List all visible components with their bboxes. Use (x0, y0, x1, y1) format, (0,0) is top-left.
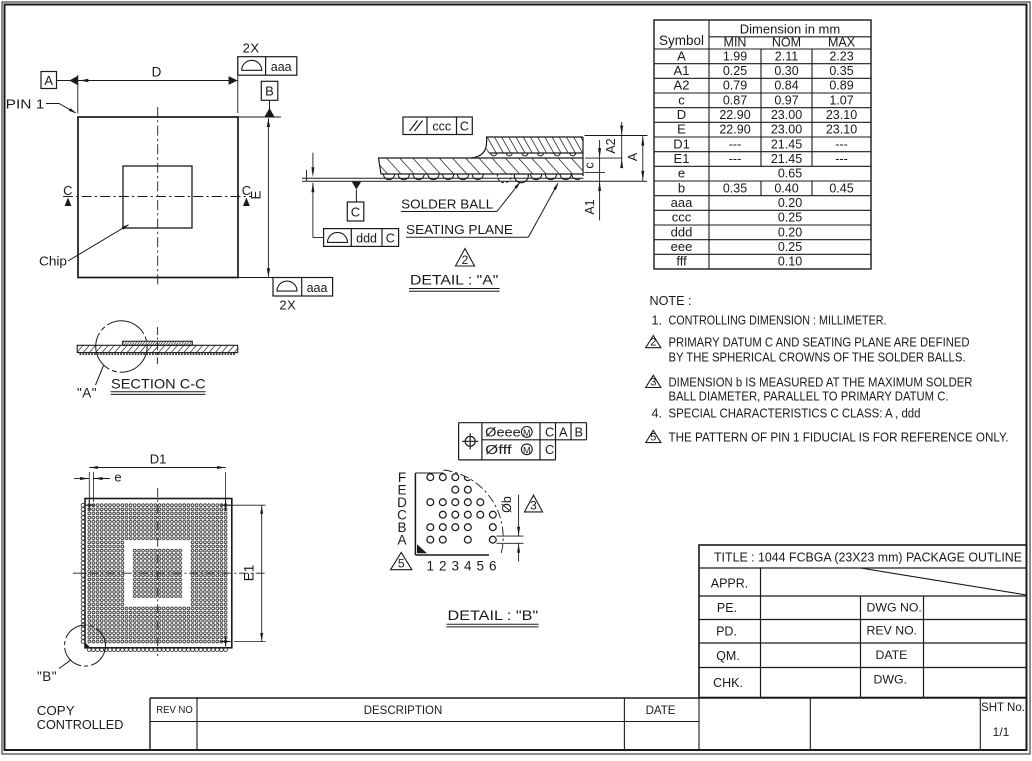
svg-text:2X: 2X (279, 298, 296, 313)
svg-text:BALL DIAMETER, PARALLEL TO PRI: BALL DIAMETER, PARALLEL TO PRIMARY DATUM… (669, 389, 949, 403)
svg-text:D1: D1 (673, 136, 690, 151)
svg-text:A: A (397, 532, 406, 547)
svg-text:2: 2 (650, 337, 656, 349)
svg-text:D1: D1 (150, 452, 167, 467)
svg-text:A1: A1 (674, 63, 690, 78)
svg-text:0.65: 0.65 (778, 167, 802, 181)
svg-text:0.84: 0.84 (774, 79, 798, 93)
svg-text:SECTION C-C: SECTION C-C (111, 376, 206, 392)
svg-text:E1: E1 (674, 151, 690, 166)
svg-text:CONTROLLED: CONTROLLED (37, 717, 124, 732)
svg-text:Dimension in mm: Dimension in mm (740, 22, 840, 37)
svg-text:22.90: 22.90 (719, 123, 750, 137)
svg-text:c: c (678, 92, 685, 107)
svg-text:B: B (575, 425, 584, 440)
svg-text:0.10: 0.10 (778, 255, 802, 269)
svg-text:b: b (678, 180, 685, 195)
svg-text:APPR.: APPR. (711, 577, 749, 591)
svg-text:c: c (583, 162, 597, 168)
svg-text:0.79: 0.79 (723, 79, 747, 93)
svg-text:---: --- (729, 152, 742, 166)
svg-text:0.25: 0.25 (723, 64, 747, 78)
svg-text:2X: 2X (243, 41, 260, 56)
svg-text:"A": "A" (77, 386, 97, 401)
svg-text:0.25: 0.25 (778, 211, 802, 225)
svg-text:5: 5 (398, 557, 405, 571)
svg-text:A: A (44, 73, 53, 88)
svg-text:0.89: 0.89 (829, 79, 853, 93)
svg-text:0.35: 0.35 (723, 181, 747, 195)
svg-text:MIN: MIN (724, 36, 747, 50)
svg-text:ccc: ccc (432, 120, 451, 134)
svg-text:0.45: 0.45 (829, 181, 853, 195)
svg-text:e: e (114, 470, 121, 485)
svg-text:0.40: 0.40 (774, 181, 798, 195)
svg-text:21.45: 21.45 (771, 152, 802, 166)
svg-text:5: 5 (477, 559, 485, 574)
svg-text:SPECIAL CHARACTERISTICS C CLAS: SPECIAL CHARACTERISTICS C CLASS: A , ddd (669, 407, 921, 421)
svg-text:---: --- (835, 137, 848, 151)
svg-text:A: A (559, 425, 568, 440)
svg-text:2.11: 2.11 (775, 49, 798, 63)
svg-text:4.: 4. (652, 407, 662, 421)
svg-text:C: C (63, 183, 72, 198)
svg-text:E: E (677, 122, 686, 137)
svg-text:C: C (460, 120, 469, 134)
svg-text:C: C (386, 232, 395, 246)
svg-text:aaa: aaa (307, 281, 328, 295)
svg-text:MAX: MAX (828, 36, 856, 50)
svg-text:C: C (545, 425, 554, 440)
svg-text:23.00: 23.00 (771, 108, 802, 122)
svg-text:DETAIL : "B": DETAIL : "B" (448, 608, 539, 623)
svg-text:ddd: ddd (671, 224, 693, 239)
svg-text:ddd: ddd (356, 232, 377, 246)
svg-text:DETAIL : "A": DETAIL : "A" (410, 273, 499, 288)
svg-text:0.97: 0.97 (774, 93, 798, 107)
svg-text:M: M (523, 445, 531, 455)
svg-text:2: 2 (439, 559, 447, 574)
svg-text:A: A (626, 152, 640, 161)
svg-text:Øeee: Øeee (485, 425, 521, 440)
svg-text:A1: A1 (583, 199, 597, 214)
svg-text:"B": "B" (37, 669, 57, 684)
svg-text:1.: 1. (652, 314, 662, 328)
svg-text:5: 5 (650, 431, 656, 443)
svg-text:QM.: QM. (716, 649, 740, 663)
svg-text:CONTROLLING DIMENSION : MILLIM: CONTROLLING DIMENSION : MILLIMETER. (669, 314, 887, 328)
svg-text:DWG.: DWG. (874, 673, 907, 687)
svg-text:A: A (677, 48, 686, 63)
svg-text:---: --- (729, 137, 742, 151)
svg-text:TITLE : 1044 FCBGA (23X23 mm): TITLE : 1044 FCBGA (23X23 mm) PACKAGE OU… (714, 550, 1022, 565)
svg-text:PRIMARY DATUM C AND SEATING PL: PRIMARY DATUM C AND SEATING PLANE ARE DE… (669, 336, 970, 350)
svg-text:eee: eee (671, 239, 693, 254)
svg-text:REV NO.: REV NO. (867, 624, 918, 638)
svg-text:aaa: aaa (671, 195, 693, 210)
svg-text:ccc: ccc (672, 210, 692, 225)
svg-text:0.30: 0.30 (774, 64, 798, 78)
svg-text:3: 3 (452, 559, 460, 574)
svg-text:2.23: 2.23 (829, 49, 853, 63)
svg-text:CHK.: CHK. (713, 676, 743, 690)
svg-text:3: 3 (650, 376, 656, 388)
svg-text:0.20: 0.20 (778, 196, 802, 210)
svg-text:DATE: DATE (876, 648, 908, 662)
svg-text:THE PATTERN OF PIN 1 FIDUCIAL: THE PATTERN OF PIN 1 FIDUCIAL IS FOR REF… (669, 431, 1009, 445)
svg-text:Øfff: Øfff (485, 442, 512, 457)
svg-text:M: M (523, 428, 531, 438)
svg-text:PIN 1: PIN 1 (6, 97, 45, 112)
svg-text:0.87: 0.87 (723, 93, 747, 107)
svg-text:SHT No.: SHT No. (981, 702, 1025, 714)
svg-text:C: C (242, 183, 251, 198)
svg-text:fff: fff (676, 254, 687, 269)
svg-text:PE.: PE. (717, 601, 737, 615)
svg-text:0.20: 0.20 (778, 225, 802, 239)
svg-text:A2: A2 (604, 138, 618, 153)
svg-text:REV NO: REV NO (156, 704, 193, 716)
svg-text:---: --- (835, 152, 848, 166)
svg-text:4: 4 (464, 559, 472, 574)
svg-text:2: 2 (462, 253, 469, 267)
svg-text:6: 6 (489, 559, 497, 574)
svg-text:DIMENSION b IS MEASURED AT THE: DIMENSION b IS MEASURED AT THE MAXIMUM S… (669, 376, 973, 390)
svg-text:21.45: 21.45 (771, 137, 802, 151)
svg-text:Symbol: Symbol (659, 33, 704, 48)
svg-text:Chip: Chip (39, 254, 67, 269)
svg-text:22.90: 22.90 (719, 108, 750, 122)
svg-text:1.99: 1.99 (723, 49, 747, 63)
svg-text:COPY: COPY (37, 703, 75, 718)
svg-text:23.00: 23.00 (771, 123, 802, 137)
svg-text:1/1: 1/1 (993, 725, 1010, 739)
svg-text:D: D (677, 107, 686, 122)
svg-text:DESCRIPTION: DESCRIPTION (364, 705, 443, 717)
svg-text:1: 1 (427, 559, 435, 574)
svg-text:0.35: 0.35 (829, 64, 853, 78)
svg-text:C: C (545, 442, 554, 457)
svg-text:SOLDER BALL: SOLDER BALL (401, 197, 493, 212)
svg-text:0.25: 0.25 (778, 240, 802, 254)
svg-text:NOTE :: NOTE : (650, 293, 692, 308)
svg-text:E1: E1 (242, 565, 257, 582)
svg-text:Øb: Øb (500, 496, 514, 513)
svg-text:BY THE SPHERICAL CROWNS OF THE: BY THE SPHERICAL CROWNS OF THE SOLDER BA… (669, 351, 966, 365)
svg-text:D: D (152, 65, 162, 80)
svg-text:DATE: DATE (646, 705, 676, 717)
svg-text:23.10: 23.10 (826, 108, 857, 122)
svg-text:B: B (265, 84, 274, 99)
svg-text:SEATING PLANE: SEATING PLANE (406, 222, 513, 237)
svg-text:1.07: 1.07 (829, 93, 853, 107)
svg-text:3: 3 (530, 499, 537, 513)
svg-text:23.10: 23.10 (826, 123, 857, 137)
svg-text:NOM: NOM (772, 36, 801, 50)
svg-text:aaa: aaa (271, 60, 292, 74)
svg-text:PD.: PD. (716, 625, 737, 639)
svg-text:A2: A2 (674, 78, 690, 93)
svg-text:C: C (351, 205, 360, 220)
svg-text:DWG NO.: DWG NO. (867, 601, 922, 615)
svg-text:e: e (678, 166, 685, 181)
